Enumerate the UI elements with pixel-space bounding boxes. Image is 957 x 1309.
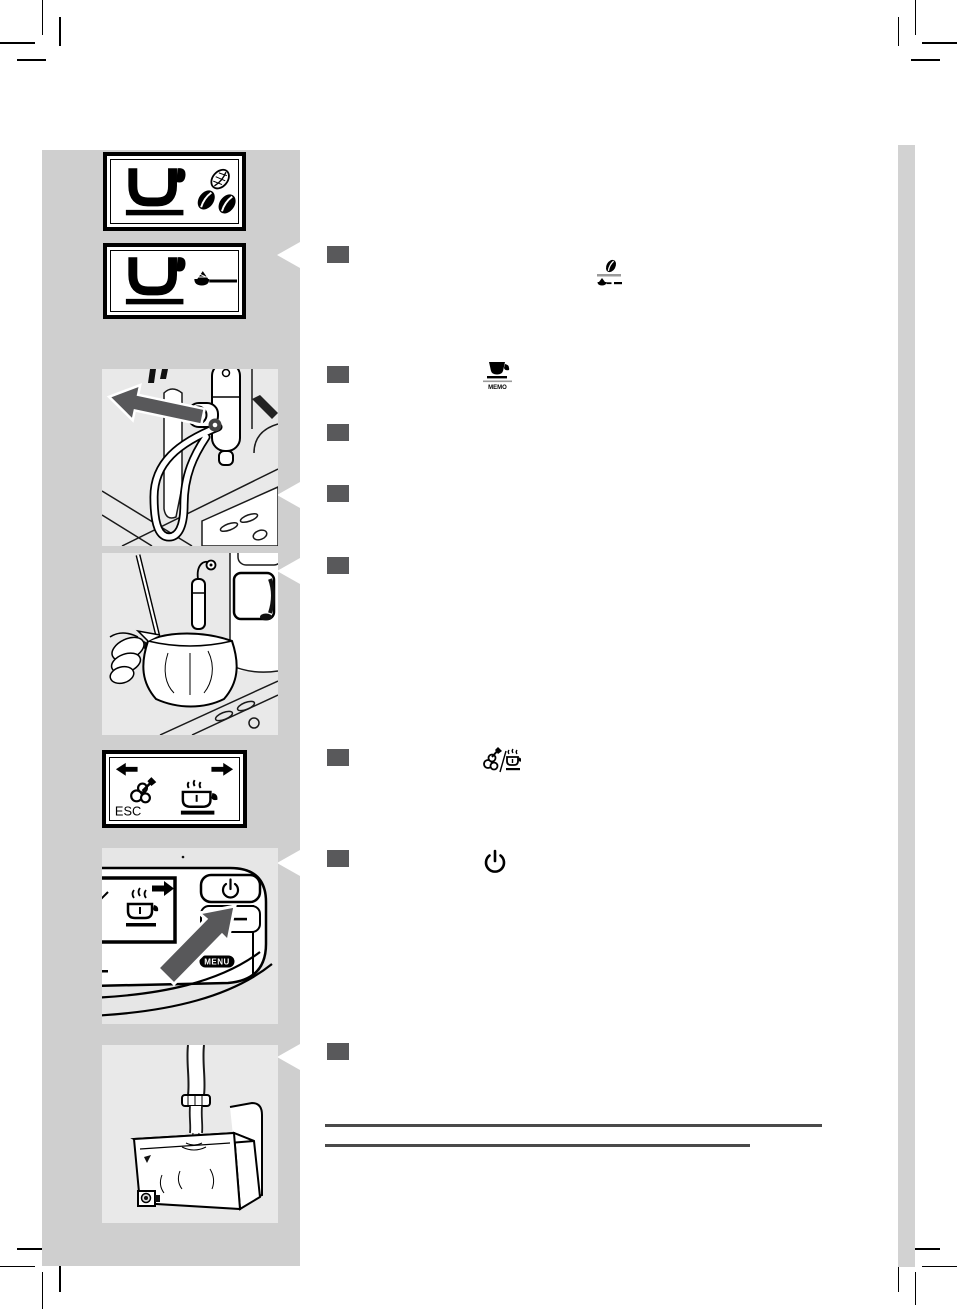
coffee-beans-icon xyxy=(194,166,238,216)
menu-label: MENU xyxy=(204,958,230,967)
step-marker-3 xyxy=(327,424,349,441)
menu-button: MENU xyxy=(200,956,235,968)
frother-mount xyxy=(234,573,274,621)
step-marker-7 xyxy=(327,850,349,867)
display-panel-espresso-beans xyxy=(103,152,246,231)
crop-mark xyxy=(915,0,917,35)
step-marker-4 xyxy=(327,485,349,502)
crop-mark xyxy=(915,1272,917,1305)
crop-mark xyxy=(42,1272,44,1309)
arrow-right-icon xyxy=(211,763,233,776)
footer-rule-1 xyxy=(325,1124,822,1127)
illustration-remove-milk-frother xyxy=(102,369,278,546)
espresso-cup-icon xyxy=(126,168,186,215)
illustration-press-standby: MENU xyxy=(102,848,278,1024)
line-art-frother xyxy=(102,369,278,546)
pointer-notch xyxy=(277,1044,300,1070)
step-marker-1 xyxy=(327,246,349,263)
display-panel-espresso-preground xyxy=(103,243,246,319)
crop-mark xyxy=(922,1266,957,1268)
line-art-jug xyxy=(102,553,278,735)
step-marker-8 xyxy=(327,1043,349,1060)
footer-rule-2 xyxy=(325,1144,750,1147)
crop-mark xyxy=(911,59,940,61)
hand xyxy=(108,633,147,686)
hot-milk-cup-icon xyxy=(181,780,218,814)
step-marker-6 xyxy=(327,749,349,766)
line-art-control-panel: MENU xyxy=(102,848,278,1024)
direction-arrow-left-icon xyxy=(105,379,206,434)
standby-button xyxy=(201,875,260,902)
line-art-tank xyxy=(102,1045,278,1223)
standby-button-icon xyxy=(483,849,507,879)
step-marker-2 xyxy=(327,366,349,383)
clean-cycle-icon xyxy=(131,777,156,802)
crop-mark xyxy=(0,1266,35,1268)
crop-mark xyxy=(898,17,900,46)
espresso-cup-icon xyxy=(126,257,186,304)
esc-label: ESC xyxy=(115,804,141,819)
pointer-notch xyxy=(277,242,300,268)
page-edge-tab xyxy=(898,145,915,1267)
ground-coffee-scoop-icon xyxy=(194,271,237,285)
crop-mark xyxy=(0,42,35,44)
pointer-notch xyxy=(277,850,300,876)
panel-display xyxy=(102,878,175,942)
milk-jug xyxy=(138,631,237,707)
illustration-frother-into-jug xyxy=(102,553,278,735)
crop-mark xyxy=(17,59,46,61)
crop-mark xyxy=(922,42,957,44)
milk-frother xyxy=(192,561,216,630)
arrow-left-icon xyxy=(116,763,138,776)
clean-or-hot-milk-icon xyxy=(481,745,521,782)
lcd-graphic: ESC xyxy=(110,758,239,820)
lcd-graphic xyxy=(111,252,238,310)
illustration-fill-water-tank xyxy=(102,1045,278,1223)
preground-coffee-select-icon xyxy=(593,258,625,295)
step-marker-5 xyxy=(327,557,349,574)
espresso-memo-button-icon: MEMO xyxy=(481,360,515,395)
crop-mark xyxy=(59,17,61,46)
display-panel-special-menu: ESC xyxy=(102,750,247,828)
memo-label: MEMO xyxy=(488,385,507,390)
manual-page: ESC xyxy=(0,0,957,1309)
crop-mark xyxy=(42,0,44,35)
lcd-graphic xyxy=(111,162,238,222)
pointer-notch xyxy=(277,482,300,508)
pointer-notch xyxy=(277,558,300,584)
